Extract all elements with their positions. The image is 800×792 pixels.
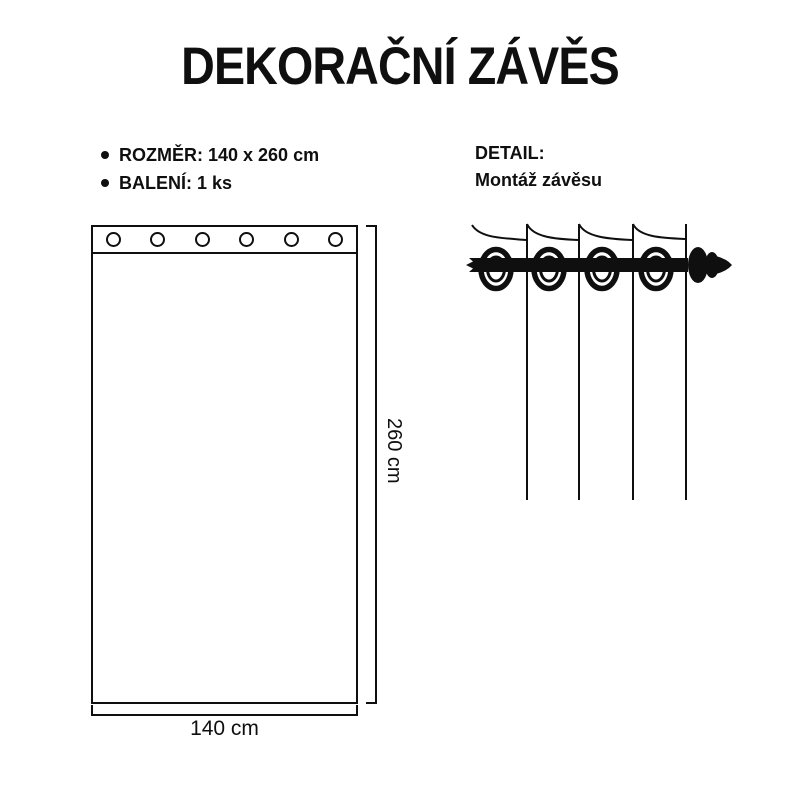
spec-item-label: ROZMĚR: 140 x 260 cm — [119, 141, 319, 169]
width-dimension-bracket — [91, 705, 358, 716]
width-dimension-label: 140 cm — [91, 717, 358, 741]
detail-subheading: Montáž závěsu — [475, 167, 602, 194]
spec-item-size: ROZMĚR: 140 x 260 cm — [101, 141, 319, 169]
grommet-icon — [328, 232, 343, 247]
bullet-icon — [101, 179, 109, 187]
height-dimension-bracket — [366, 225, 377, 704]
curtain-rod — [466, 258, 688, 272]
rod-finial-icon — [688, 247, 732, 283]
height-dimension-label: 260 cm — [383, 418, 405, 484]
grommet-icon — [239, 232, 254, 247]
bullet-icon — [101, 151, 109, 159]
detail-heading-block: DETAIL: Montáž závěsu — [475, 140, 602, 194]
product-infographic: DEKORAČNÍ ZÁVĚS ROZMĚR: 140 x 260 cm BAL… — [0, 0, 800, 792]
page-title: DEKORAČNÍ ZÁVĚS — [48, 36, 752, 97]
spec-item-label: BALENÍ: 1 ks — [119, 169, 232, 197]
detail-heading: DETAIL: — [475, 140, 602, 167]
grommet-row — [93, 227, 356, 254]
mounting-detail-illustration — [450, 210, 750, 510]
grommet-icon — [106, 232, 121, 247]
grommet-icon — [284, 232, 299, 247]
spec-list: ROZMĚR: 140 x 260 cm BALENÍ: 1 ks — [101, 141, 319, 197]
spec-item-package: BALENÍ: 1 ks — [101, 169, 319, 197]
curtain-front-view — [91, 225, 358, 704]
grommet-icon — [195, 232, 210, 247]
grommet-icon — [150, 232, 165, 247]
